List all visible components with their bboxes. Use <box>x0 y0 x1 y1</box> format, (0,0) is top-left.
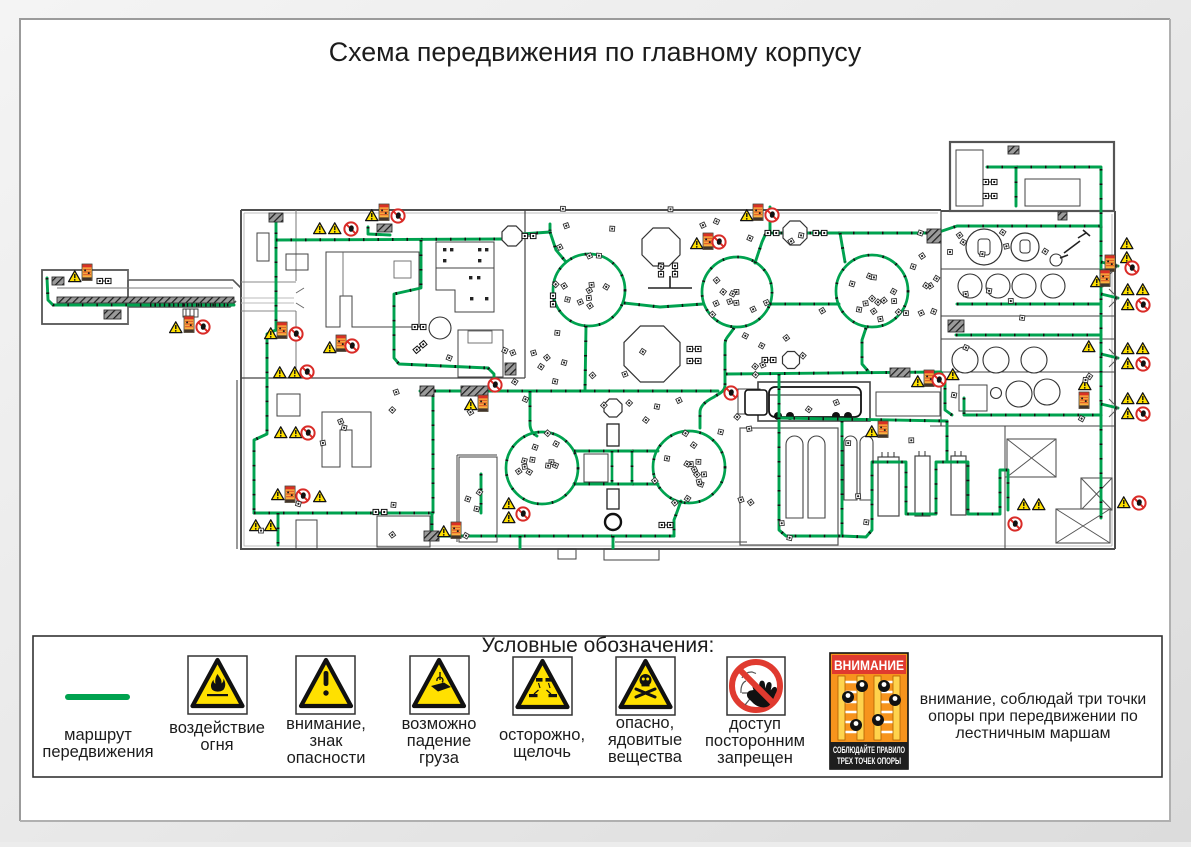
svg-text:Схема передвижения по главному: Схема передвижения по главному корпусу <box>329 37 862 67</box>
svg-text:ТРЕХ ТОЧЕК ОПОРЫ: ТРЕХ ТОЧЕК ОПОРЫ <box>837 756 901 766</box>
svg-text:ВНИМАНИЕ: ВНИМАНИЕ <box>834 657 904 673</box>
svg-text:СОБЛЮДАЙТЕ ПРАВИЛО: СОБЛЮДАЙТЕ ПРАВИЛО <box>833 744 905 755</box>
svg-text:опасно,ядовитыевещества: опасно,ядовитыевещества <box>608 714 683 766</box>
svg-text:Условные обозначения:: Условные обозначения: <box>482 634 715 657</box>
